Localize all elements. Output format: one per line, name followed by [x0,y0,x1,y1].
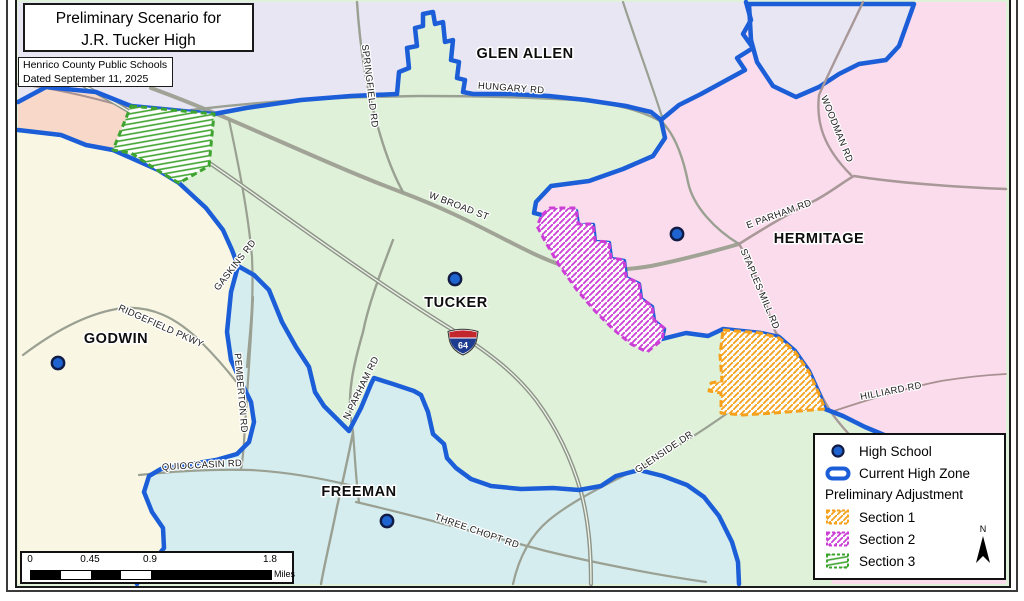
zone-label-freeman: FREEMAN [321,484,396,500]
scale-bar-segments [30,570,272,580]
title-box: Preliminary Scenario for J.R. Tucker Hig… [23,3,254,52]
zone-label-hermitage: HERMITAGE [774,231,864,247]
zone-label-glen-allen: GLEN ALLEN [476,46,573,62]
scale-seg-1 [31,571,61,579]
scale-tick-18: 1.8 [263,554,277,565]
subtitle-org: Henrico County Public Schools [23,59,168,73]
north-label: N [974,525,992,535]
scale-seg-5 [151,571,271,579]
scale-tick-09: 0.9 [143,554,157,565]
section2-hatch-icon [825,531,851,547]
legend-section2-label: Section 2 [859,532,915,547]
scale-seg-2 [61,571,91,579]
legend-section1-label: Section 1 [859,510,915,525]
zone-label-tucker: TUCKER [424,295,487,311]
current-zone-line-icon [825,466,851,481]
shield-number: 64 [458,341,468,351]
scale-seg-3 [91,571,121,579]
legend-adjustment-heading: Preliminary Adjustment [825,484,1004,506]
hermitage-school-dot [671,228,683,240]
section3-hatch-icon [825,553,851,569]
north-indicator: N [974,525,992,568]
title-line1: Preliminary Scenario for [25,8,252,30]
legend-high-school-label: High School [859,444,932,459]
north-arrow-icon [974,535,992,565]
subtitle-dated: Dated September 11, 2025 [23,73,168,87]
legend: High School Current High Zone Preliminar… [813,433,1006,580]
zone-label-godwin: GODWIN [84,331,148,347]
map-page: 64 GLEN ALLEN HERMITAGE TUCKER GODWIN FR… [0,0,1024,601]
freeman-school-dot [381,515,393,527]
high-school-dot-icon [825,443,851,459]
legend-row-high-school: High School [825,440,1004,462]
legend-section3-label: Section 3 [859,554,915,569]
section1-hatch-icon [825,509,851,525]
legend-row-current-zone: Current High Zone [825,462,1004,484]
legend-current-zone-label: Current High Zone [859,466,970,481]
scale-tick-045: 0.45 [80,554,99,565]
godwin-school-dot [52,357,64,369]
scale-unit: Miles [274,569,295,579]
scale-seg-4 [121,571,151,579]
title-line2: J.R. Tucker High [25,30,252,52]
scale-bar: 0 0.45 0.9 1.8 Miles [20,551,294,584]
tucker-school-dot [449,273,461,285]
subtitle-box: Henrico County Public Schools Dated Sept… [18,57,173,87]
shield-red-band [449,330,477,337]
scale-tick-0: 0 [27,554,33,565]
